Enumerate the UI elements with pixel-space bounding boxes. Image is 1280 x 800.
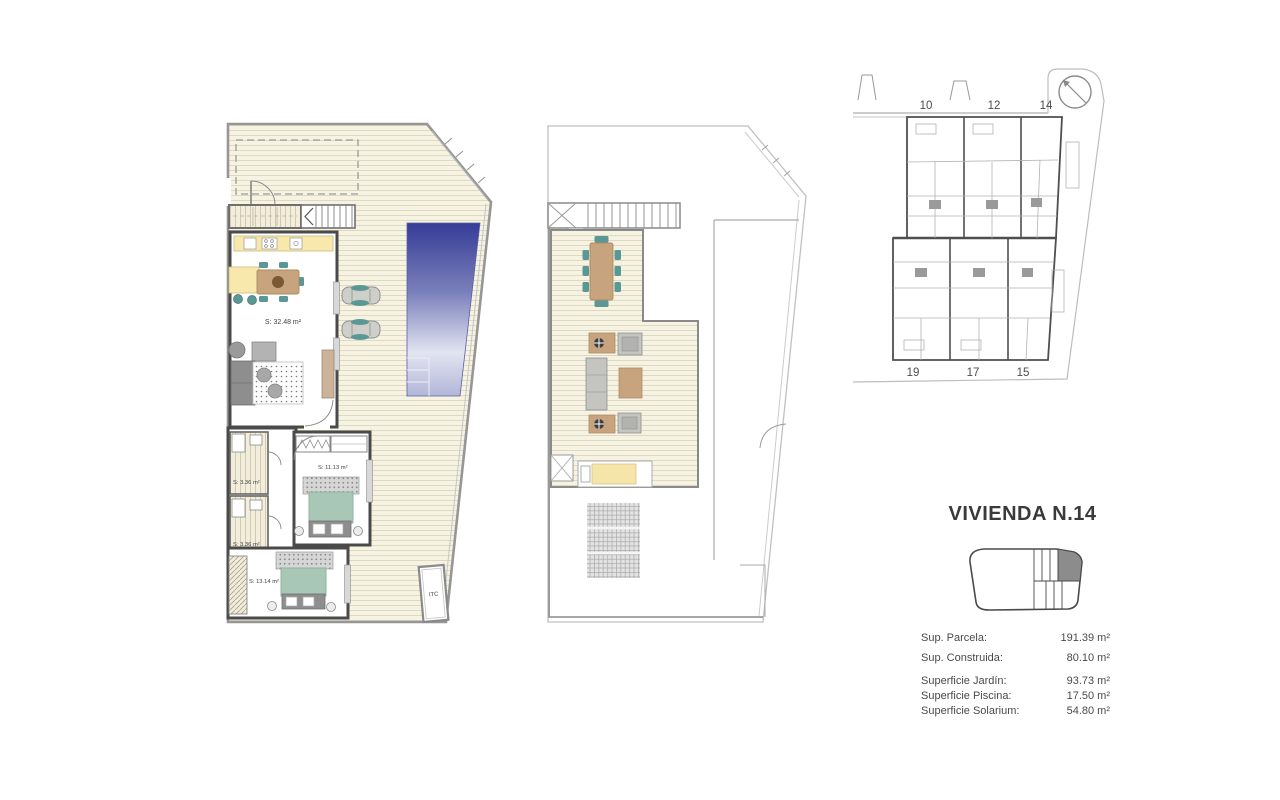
sink-icon	[290, 238, 302, 249]
bedroom-1-label: S: 11.13 m²	[318, 465, 348, 471]
measurement-row: Superficie Piscina: 17.50 m²	[921, 690, 1110, 703]
window	[367, 460, 373, 502]
measurement-label: Superficie Jardín:	[921, 675, 1007, 688]
bedroom-2: S: 13.14 m²	[228, 548, 351, 618]
unit-number-10: 10	[920, 100, 933, 112]
unit-number-14: 14	[1040, 100, 1053, 112]
measurement-row: Superficie Jardín: 93.73 m²	[921, 675, 1110, 688]
bathroom-1: S: 3.36 m²	[230, 432, 268, 494]
measurement-value: 54.80 m²	[1067, 705, 1110, 718]
measurement-label: Superficie Solarium:	[921, 705, 1019, 718]
itc-cabinet: ITC	[419, 565, 449, 622]
living-room-label: S: 32.48 m²	[265, 319, 302, 326]
unit-number-12: 12	[988, 100, 1001, 112]
measurement-value: 191.39 m²	[1060, 632, 1110, 645]
measurement-value: 17.50 m²	[1067, 690, 1110, 703]
itc-label: ITC	[429, 592, 439, 599]
bathroom-1-label: S: 3.36 m²	[233, 480, 260, 486]
kitchen-counter	[234, 236, 333, 251]
skylight-grid	[587, 503, 640, 578]
site-plan: 10 12 14 19 17 15	[853, 69, 1104, 382]
measurement-label: Superficie Piscina:	[921, 690, 1012, 703]
sheet-title: VIVIENDA N.14	[915, 503, 1130, 526]
compass-icon	[1059, 76, 1091, 108]
storage-room	[229, 205, 301, 228]
measurement-row: Superficie Solarium: 54.80 m²	[921, 705, 1110, 718]
closet	[229, 556, 247, 614]
street-entry-marker	[858, 75, 970, 100]
architectural-sheet: S: 32.48 m²	[0, 0, 1280, 800]
bedroom-2-label: S: 13.14 m²	[249, 579, 279, 585]
window	[345, 565, 351, 603]
solarium-daybed	[578, 461, 652, 487]
sun-lounger	[342, 285, 380, 306]
bedroom-1: S: 11.13 m²	[294, 432, 373, 545]
measurement-value: 93.73 m²	[1067, 675, 1110, 688]
key-plan	[970, 549, 1082, 610]
cooktop-icon	[262, 238, 277, 249]
measurement-label: Sup. Construida:	[921, 652, 1003, 665]
unit-number-19: 19	[907, 367, 920, 379]
sun-lounger	[342, 319, 380, 340]
measurements-table: Sup. Parcela: 191.39 m² Sup. Construida:…	[921, 632, 1110, 718]
staircase	[301, 205, 355, 228]
measurement-row: Sup. Parcela: 191.39 m²	[921, 632, 1110, 645]
measurement-row: Sup. Construida: 80.10 m²	[921, 652, 1110, 665]
ground-floor-plan: S: 32.48 m²	[225, 124, 491, 622]
window	[334, 282, 340, 314]
measurement-value: 80.10 m²	[1067, 652, 1110, 665]
unit-number-15: 15	[1017, 367, 1030, 379]
measurement-label: Sup. Parcela:	[921, 632, 987, 645]
unit-number-17: 17	[967, 367, 980, 379]
outdoor-cabinet	[322, 350, 334, 398]
stair-hatch	[551, 455, 573, 481]
living-kitchen-room: S: 32.48 m²	[229, 232, 340, 430]
solarium-plan	[548, 126, 806, 622]
